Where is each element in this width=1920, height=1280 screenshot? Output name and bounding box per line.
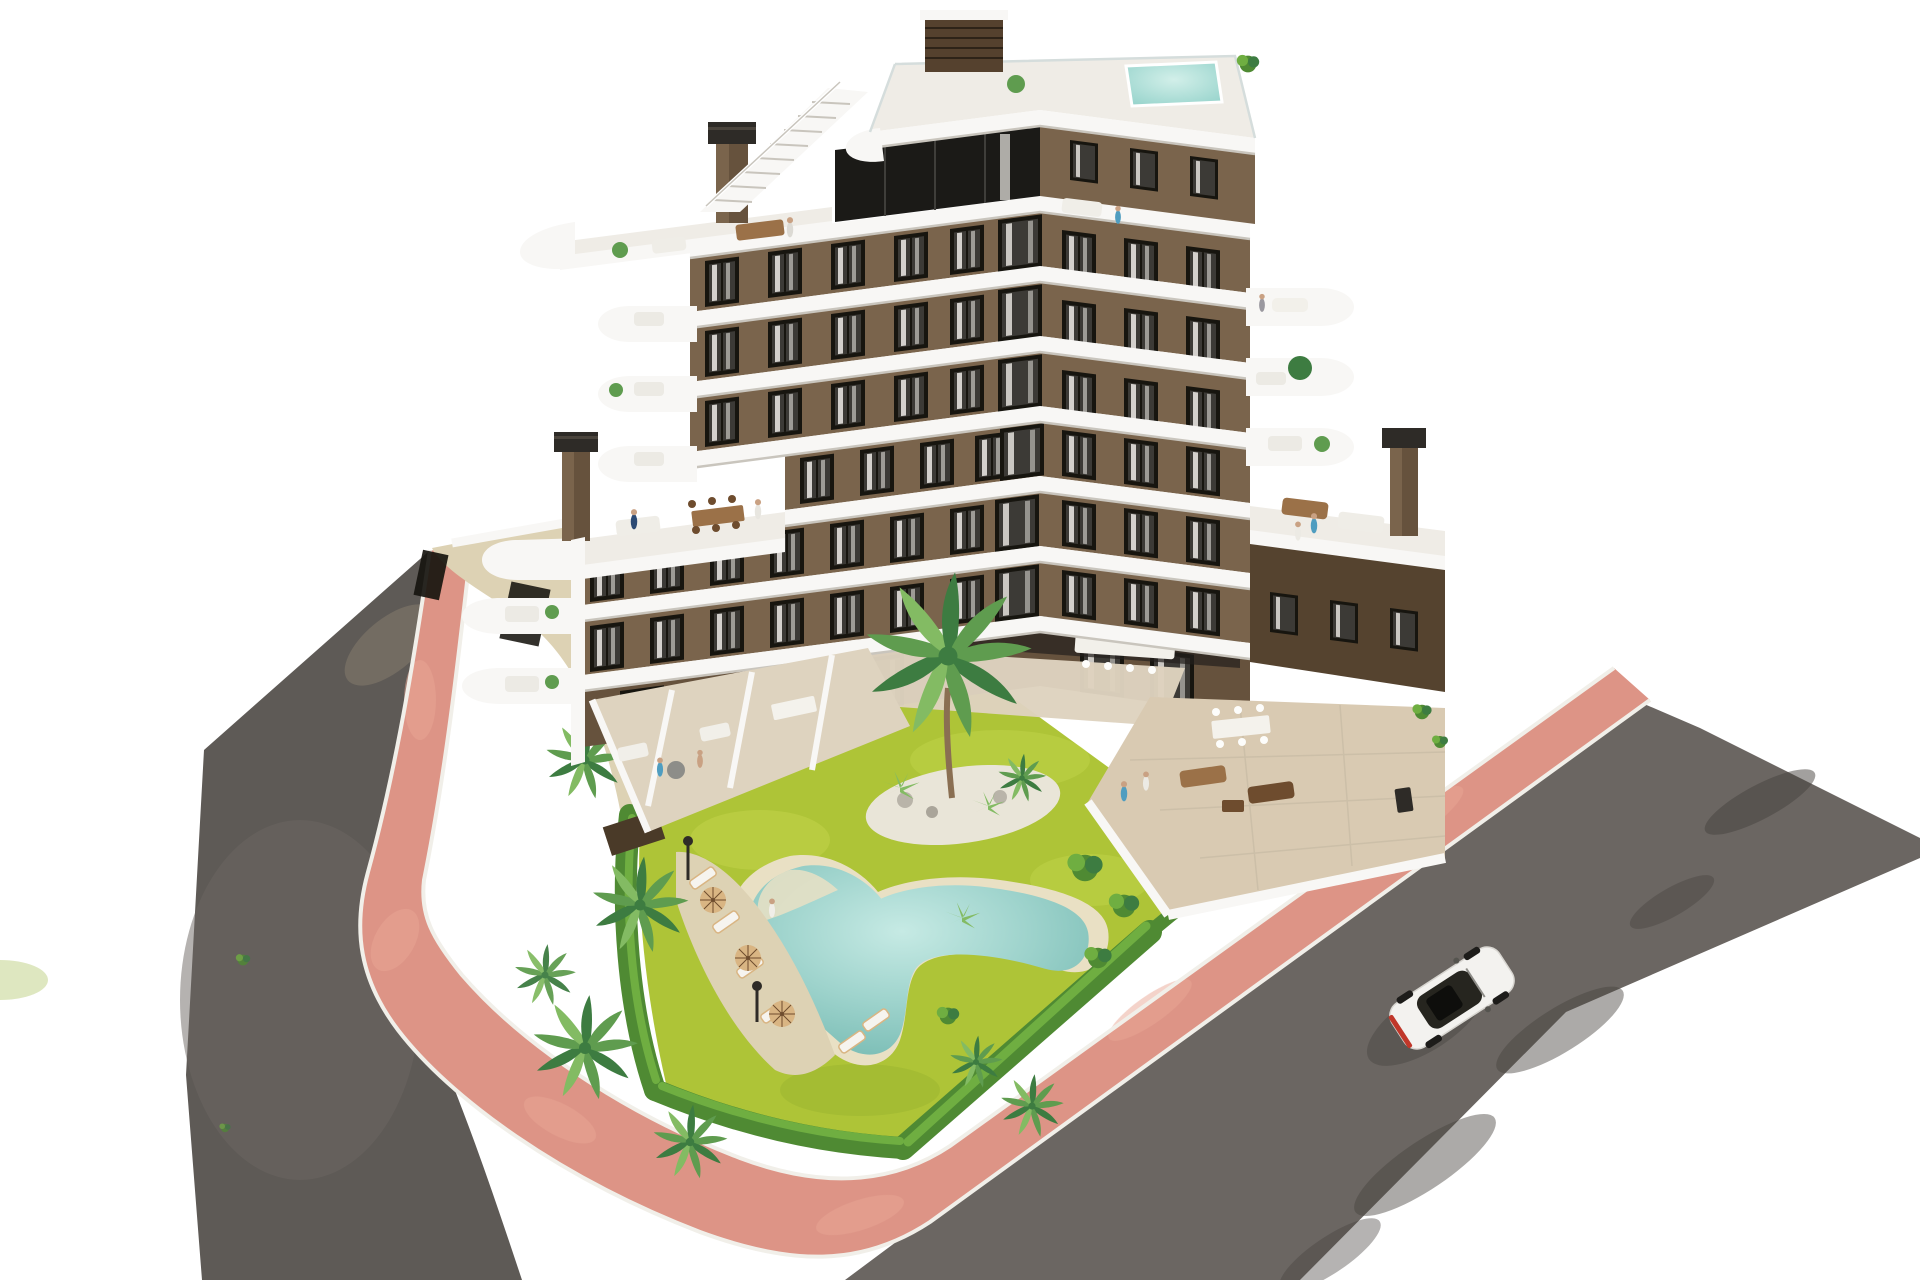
window bbox=[1130, 148, 1158, 192]
roof-headhouse bbox=[920, 10, 1008, 72]
window bbox=[860, 446, 894, 496]
window bbox=[800, 454, 834, 504]
window bbox=[998, 284, 1042, 342]
grill bbox=[1394, 787, 1413, 813]
window bbox=[920, 439, 954, 489]
window bbox=[770, 598, 804, 648]
person-penthouse bbox=[1115, 206, 1121, 224]
window bbox=[1186, 586, 1220, 636]
balcony-sofa bbox=[505, 606, 539, 622]
balcony-sofa bbox=[1268, 436, 1302, 451]
window bbox=[710, 606, 744, 656]
window bbox=[950, 295, 984, 345]
window bbox=[831, 380, 865, 430]
balcony-sofa bbox=[1256, 372, 1286, 385]
window bbox=[1390, 608, 1418, 652]
window bbox=[998, 214, 1042, 272]
window bbox=[831, 240, 865, 290]
person-terrace bbox=[1295, 522, 1301, 541]
person-terrace bbox=[755, 499, 761, 519]
window bbox=[830, 590, 864, 640]
penthouse-parapet-corner bbox=[520, 222, 575, 269]
window bbox=[894, 232, 928, 282]
person-poolside bbox=[769, 899, 775, 918]
window bbox=[1186, 516, 1220, 566]
person-patio bbox=[657, 758, 663, 777]
window bbox=[998, 354, 1042, 412]
balcony-tree bbox=[1288, 356, 1312, 380]
window bbox=[705, 257, 739, 307]
window bbox=[768, 388, 802, 438]
window bbox=[1186, 446, 1220, 496]
window bbox=[768, 318, 802, 368]
person-penthouse bbox=[787, 217, 793, 237]
palm-tree bbox=[514, 944, 575, 1006]
window bbox=[1124, 578, 1158, 628]
parasol bbox=[769, 1001, 795, 1027]
window bbox=[894, 372, 928, 422]
terrace-parapet-corner bbox=[482, 538, 585, 580]
person-patio bbox=[697, 750, 703, 768]
roof-plant bbox=[1007, 75, 1025, 93]
window bbox=[768, 248, 802, 298]
balcony-plant bbox=[545, 675, 559, 689]
window bbox=[705, 397, 739, 447]
aerial-render bbox=[0, 0, 1920, 1280]
window bbox=[995, 494, 1039, 552]
parasol bbox=[700, 887, 726, 913]
balcony-sofa bbox=[505, 676, 539, 692]
right-wing bbox=[1250, 428, 1445, 692]
person-terrace bbox=[1143, 772, 1149, 791]
window bbox=[705, 327, 739, 377]
window bbox=[1124, 508, 1158, 558]
window bbox=[650, 614, 684, 664]
roof-plant bbox=[1237, 55, 1259, 73]
window bbox=[1062, 430, 1096, 480]
person-terrace bbox=[1311, 513, 1317, 533]
window bbox=[590, 622, 624, 672]
window bbox=[1062, 500, 1096, 550]
window bbox=[1330, 600, 1358, 644]
window bbox=[1000, 423, 1044, 481]
window bbox=[950, 225, 984, 275]
window bbox=[1190, 156, 1218, 200]
person-balcony bbox=[1259, 294, 1265, 312]
balcony-plant bbox=[545, 605, 559, 619]
window bbox=[950, 365, 984, 415]
penthouse-curtain bbox=[1000, 134, 1010, 200]
window bbox=[1070, 140, 1098, 184]
balcony-lounger bbox=[1272, 298, 1308, 312]
roof-slab-cap bbox=[846, 128, 884, 162]
window bbox=[1062, 570, 1096, 620]
parasol bbox=[735, 945, 761, 971]
rendering-canvas bbox=[0, 0, 1920, 1280]
window bbox=[1124, 438, 1158, 488]
rooftop-pool bbox=[1126, 62, 1222, 106]
window bbox=[890, 513, 924, 563]
window bbox=[894, 302, 928, 352]
window bbox=[831, 310, 865, 360]
balcony-sofa bbox=[634, 452, 664, 466]
wing-end-wall bbox=[571, 537, 585, 766]
window bbox=[1270, 592, 1298, 636]
person-terrace bbox=[631, 509, 637, 529]
balcony-plant bbox=[609, 383, 623, 397]
balcony-plant bbox=[1314, 436, 1330, 452]
person-terrace bbox=[1121, 781, 1127, 801]
patio-table-round bbox=[667, 761, 685, 779]
chimney bbox=[1382, 428, 1426, 536]
window bbox=[995, 564, 1039, 622]
balcony-sofa bbox=[634, 312, 664, 326]
window bbox=[950, 505, 984, 555]
balcony-sofa bbox=[634, 382, 664, 396]
coffee-table bbox=[1222, 800, 1244, 812]
